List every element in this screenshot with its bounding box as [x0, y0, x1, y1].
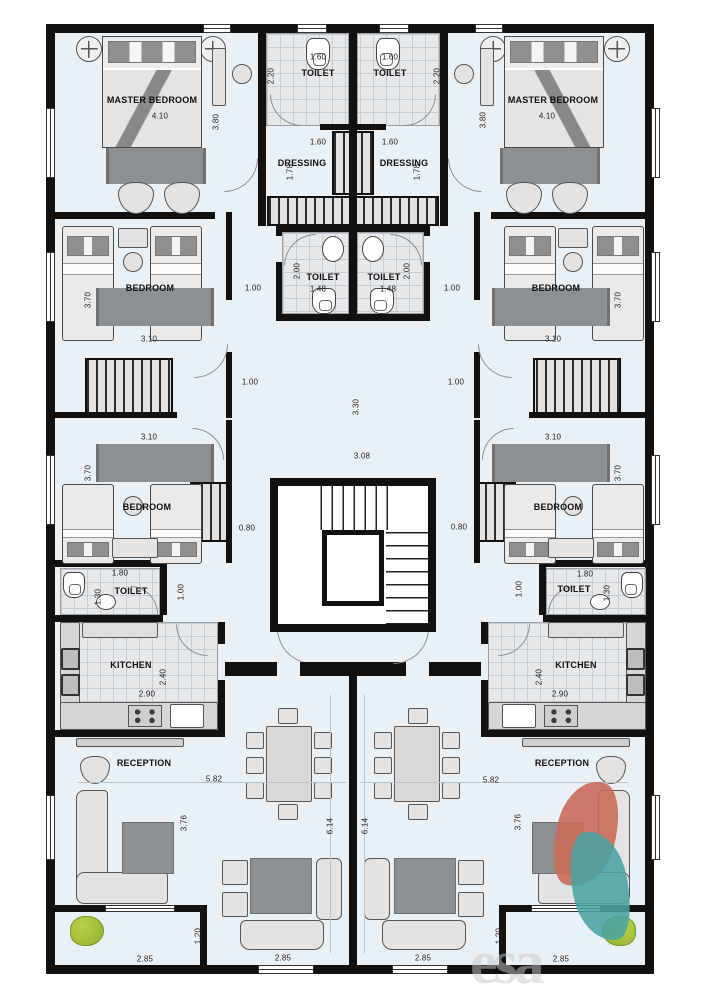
wall — [349, 314, 430, 321]
toilet-sink — [362, 236, 384, 262]
label-dimension: 1.60 — [382, 138, 398, 147]
label-dimension: 5.82 — [483, 776, 499, 785]
label-dimension: 2.85 — [275, 954, 291, 963]
label-dimension: 4.10 — [539, 112, 555, 121]
label-dimension: 2.20 — [433, 68, 442, 84]
master-bed — [504, 36, 604, 148]
label-dimension: 2.40 — [535, 669, 544, 685]
label-dimension: 1.00 — [444, 284, 460, 293]
wall — [349, 226, 430, 232]
label-reception: RECEPTION — [535, 758, 589, 768]
label-toilet: TOILET — [301, 68, 334, 78]
nightstand — [558, 228, 588, 248]
label-dimension: 3.08 — [354, 452, 370, 461]
window — [651, 795, 660, 860]
label-dimension: 0.80 — [239, 524, 255, 533]
window — [651, 108, 660, 178]
armchair — [458, 860, 484, 885]
label-dimension: 3.70 — [84, 292, 93, 308]
label-dimension: 6.14 — [326, 818, 335, 834]
toilet-wc — [621, 572, 643, 598]
wall — [474, 352, 480, 418]
label-dimension: 1.78 — [286, 164, 295, 180]
wall — [481, 730, 651, 737]
sitting-table — [394, 858, 456, 914]
wall — [474, 420, 480, 563]
window — [379, 24, 409, 33]
dining-chair — [442, 732, 460, 749]
stair-flight — [386, 532, 428, 624]
label-bedroom: BEDROOM — [126, 283, 174, 293]
window — [475, 24, 503, 33]
label-dimension: 2.85 — [415, 954, 431, 963]
label-dimension: 2.90 — [552, 690, 568, 699]
wall — [429, 662, 481, 676]
dining-chair — [374, 732, 392, 749]
label-dimension: 4.10 — [152, 112, 168, 121]
label-dimension: 6.14 — [361, 818, 370, 834]
corridor-wardrobe — [353, 196, 439, 226]
label-dimension: 1.80 — [577, 570, 593, 579]
armchair — [596, 756, 626, 784]
label-bedroom: BEDROOM — [123, 502, 171, 512]
label-dimension: 2.85 — [553, 955, 569, 964]
label-dimension: 2.85 — [137, 955, 153, 964]
label-bedroom: BEDROOM — [534, 502, 582, 512]
stair-flight — [318, 486, 388, 530]
door-arc — [448, 158, 482, 192]
wall — [529, 412, 651, 418]
label-dimension: 3.30 — [352, 399, 361, 415]
bedroom-wardrobe — [533, 358, 621, 416]
label-master-bedroom: MASTER BEDROOM — [107, 95, 197, 105]
label-dimension: 1.60 — [310, 138, 326, 147]
label-dimension: 1.00 — [515, 581, 524, 597]
armchair — [506, 182, 542, 214]
window — [392, 965, 448, 974]
sofa — [382, 920, 466, 950]
label-dimension: 3.80 — [479, 112, 488, 128]
wall — [349, 226, 357, 320]
label-dimension: 1.30 — [603, 585, 612, 601]
label-dimension: 3.80 — [212, 114, 221, 130]
label-dimension: 1.20 — [194, 928, 203, 944]
wall — [543, 615, 651, 622]
stool — [563, 252, 583, 272]
label-dimension: 5.82 — [206, 775, 222, 784]
dining-chair — [408, 708, 428, 724]
door-arc — [482, 428, 514, 460]
label-bedroom: BEDROOM — [532, 283, 580, 293]
entrance-door-arc — [393, 628, 429, 664]
label-toilet: TOILET — [557, 584, 590, 594]
label-reception: RECEPTION — [117, 758, 171, 768]
label-dimension: 1.30 — [94, 589, 103, 605]
label-dimension: 3.10 — [141, 433, 157, 442]
bench — [548, 538, 594, 558]
label-dimension: 3.10 — [141, 335, 157, 344]
wall — [440, 33, 448, 226]
label-dimension: 1.00 — [242, 378, 258, 387]
label-toilet: TOILET — [367, 272, 400, 282]
label-dimension: 1.48 — [310, 285, 326, 294]
label-dimension: 3.70 — [84, 465, 93, 481]
label-dimension: 1.00 — [245, 284, 261, 293]
window — [651, 252, 660, 322]
dining-table — [394, 726, 440, 802]
watermark-text: esa — [470, 928, 541, 999]
label-dimension: 2.00 — [403, 263, 412, 279]
wall — [349, 33, 357, 128]
label-dimension: 1.78 — [413, 164, 422, 180]
label-toilet: TOILET — [306, 272, 339, 282]
wall — [474, 212, 480, 300]
label-dimension: 2.00 — [293, 263, 302, 279]
rug — [500, 148, 600, 184]
refrigerator — [626, 648, 645, 670]
label-dimension: 3.10 — [545, 433, 561, 442]
stair-void — [322, 530, 384, 606]
wall — [424, 228, 430, 236]
label-dimension: 2.40 — [159, 669, 168, 685]
label-dimension: 1.80 — [112, 569, 128, 578]
label-dimension: 3.76 — [514, 814, 523, 830]
window — [651, 455, 660, 525]
twin-bed — [592, 484, 644, 564]
label-dimension: 2.20 — [267, 68, 276, 84]
kitchen-cabinet — [548, 622, 624, 638]
wall — [424, 262, 430, 320]
label-dimension: 1.60 — [310, 53, 326, 62]
dining-chair — [374, 782, 392, 799]
oven — [626, 674, 645, 696]
label-dimension: 1.00 — [177, 584, 186, 600]
dining-chair — [408, 804, 428, 820]
wall — [539, 565, 546, 615]
wall — [349, 662, 357, 965]
armchair — [458, 892, 484, 917]
label-dimension: 1.00 — [448, 378, 464, 387]
label-dimension: 3.76 — [180, 815, 189, 831]
wall — [356, 124, 386, 130]
tv-console — [522, 738, 630, 747]
label-dimension: 3.70 — [614, 465, 623, 481]
wall — [349, 128, 357, 226]
dining-chair — [374, 757, 392, 774]
label-dimension: 2.90 — [139, 690, 155, 699]
label-kitchen: KITCHEN — [110, 660, 151, 670]
wall — [481, 680, 488, 732]
ceiling-fan-icon — [604, 36, 630, 62]
dresser — [480, 48, 494, 106]
label-toilet: TOILET — [373, 68, 406, 78]
dining-chair — [442, 757, 460, 774]
dining-chair — [442, 782, 460, 799]
door-arc — [478, 344, 512, 378]
label-dimension: 3.10 — [545, 335, 561, 344]
stove — [544, 705, 578, 727]
label-dimension: 1.60 — [382, 53, 398, 62]
rug — [492, 288, 610, 326]
label-toilet: TOILET — [114, 586, 147, 596]
side-chair — [454, 64, 474, 84]
armchair — [552, 182, 588, 214]
label-dimension: 3.70 — [614, 292, 623, 308]
loveseat — [364, 858, 390, 920]
kitchen-sink — [502, 704, 536, 728]
label-dimension: 0.80 — [451, 523, 467, 532]
label-dimension: 1.48 — [380, 285, 396, 294]
floor-plan: MASTER BEDROOMMASTER BEDROOMTOILETTOILET… — [0, 0, 706, 1000]
wall — [481, 622, 488, 644]
label-kitchen: KITCHEN — [555, 660, 596, 670]
label-master-bedroom: MASTER BEDROOM — [508, 95, 598, 105]
